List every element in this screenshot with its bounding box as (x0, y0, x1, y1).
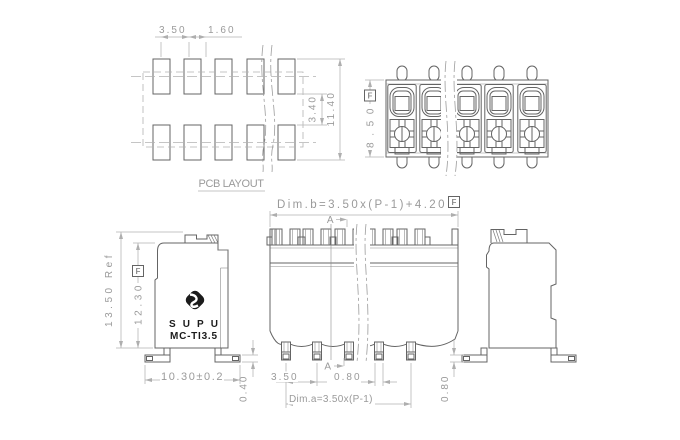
datum-letter: F (452, 198, 457, 207)
connector-body (386, 80, 548, 157)
datum-letter: F (136, 267, 141, 276)
dim-pad-width-label: 1.60 (208, 25, 234, 36)
model-number: MC-TI3.5 (170, 331, 218, 342)
connector-outline-dashed (143, 72, 303, 147)
dim-body-height-label: 12.30 (134, 285, 145, 325)
dim-pitch-label: 3.50 (271, 372, 297, 383)
solder-pin (345, 342, 354, 360)
datum-letter: F (368, 92, 373, 101)
dim-width-label: 10.30±0.2 (161, 371, 223, 383)
front-view: A A Dim.b=3.50x(P-1)+4.20 F 3.50 0.80 (267, 197, 460, 409)
section-label-bottom: A (324, 362, 331, 373)
dim-foot-height-label: 0.80 (440, 376, 451, 402)
smt-foot (551, 348, 576, 362)
solder-tab (429, 66, 439, 81)
dim-a-label: Dim.a=3.50x(P-1) (289, 394, 373, 405)
solder-tab (527, 66, 537, 81)
drawing-sheet: 3.50 1.60 3.40 11.40 PCB LAYOUT (0, 0, 680, 440)
pcb-layout-view: 3.50 1.60 3.40 11.40 PCB LAYOUT (131, 25, 345, 191)
section-side-view: 0.80 (440, 230, 576, 403)
dim-b-label: Dim.b=3.50x(P-1)+4.20 (277, 199, 445, 211)
housing-outline (487, 243, 557, 348)
side-view: SUPU MC-TI3.5 13.50 Ref 12.30 F 10.30±0.… (104, 232, 258, 402)
section-label-top: A (327, 215, 334, 226)
break-line (271, 45, 275, 172)
smt-foot (145, 348, 170, 362)
solder-tab (397, 66, 407, 81)
solder-pin (282, 342, 291, 360)
top-view: 8.50 F (364, 60, 548, 178)
smt-foot (215, 348, 240, 362)
dim-row-gap-label: 3.40 (308, 97, 319, 123)
dim-pin-width-label: 0.80 (334, 372, 360, 383)
technical-drawing: 3.50 1.60 3.40 11.40 PCB LAYOUT (0, 0, 680, 440)
solder-pin (375, 342, 384, 360)
dim-foot-thickness-label: 0.40 (239, 376, 250, 402)
solder-pin (407, 342, 416, 360)
dim-total-height-label: 11.40 (326, 93, 337, 127)
dim-overall-height-label: 13.50 Ref (104, 255, 115, 327)
smt-foot (462, 348, 487, 362)
solder-pin (313, 342, 322, 360)
pcb-layout-title: PCB LAYOUT (199, 178, 265, 190)
solder-tab (494, 66, 504, 81)
solder-tab (462, 66, 472, 81)
dim-pitch-label: 3.50 (159, 25, 185, 36)
